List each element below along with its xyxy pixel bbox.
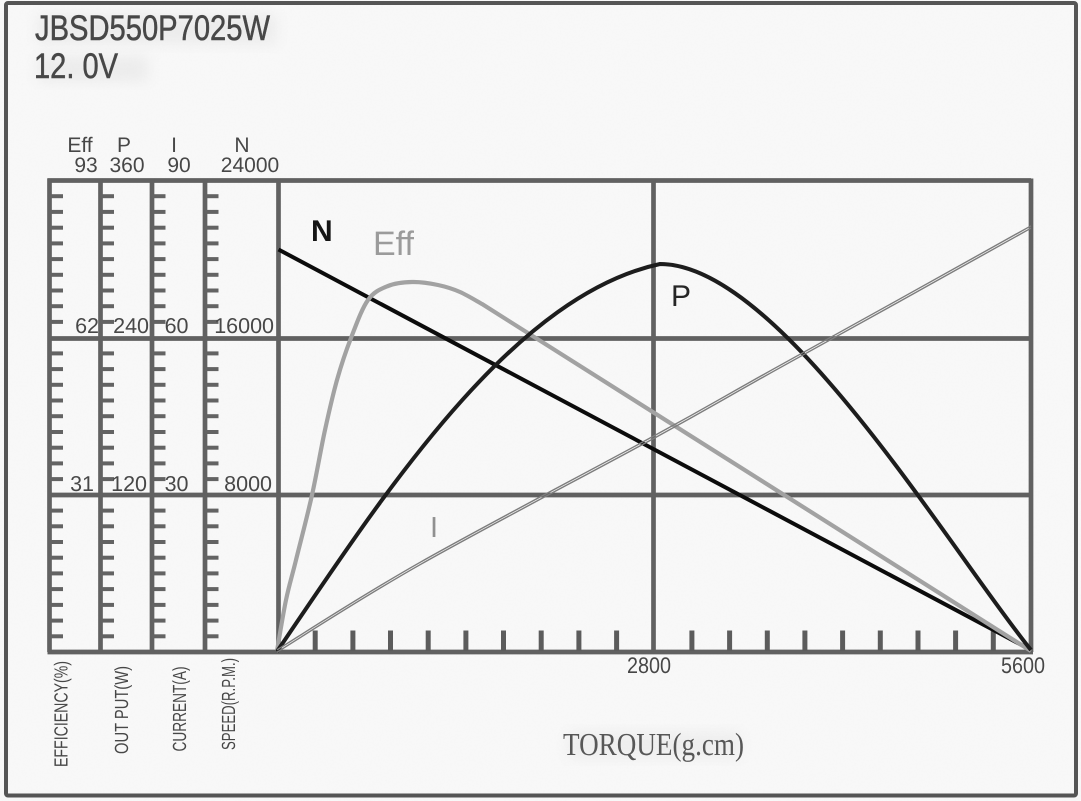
svg-text:Eff: Eff bbox=[373, 225, 415, 263]
svg-text:30: 30 bbox=[165, 472, 189, 496]
svg-text:OUT PUT(W): OUT PUT(W) bbox=[112, 666, 133, 754]
svg-text:8000: 8000 bbox=[224, 472, 272, 496]
svg-text:93: 93 bbox=[74, 154, 97, 177]
svg-text:N: N bbox=[311, 215, 333, 248]
svg-text:90: 90 bbox=[167, 154, 190, 177]
svg-text:12. 0V: 12. 0V bbox=[34, 46, 118, 86]
svg-text:240: 240 bbox=[113, 314, 149, 338]
svg-text:TORQUE(g.cm): TORQUE(g.cm) bbox=[563, 726, 744, 762]
svg-text:SPEED(R.P.M.): SPEED(R.P.M.) bbox=[219, 658, 240, 750]
svg-text:5600: 5600 bbox=[1001, 653, 1045, 678]
svg-text:2800: 2800 bbox=[627, 653, 671, 678]
svg-text:60: 60 bbox=[165, 314, 189, 338]
svg-text:EFFICIENCY(%): EFFICIENCY(%) bbox=[52, 661, 73, 767]
svg-text:JBSD550P7025W: JBSD550P7025W bbox=[35, 8, 270, 48]
svg-text:16000: 16000 bbox=[214, 314, 274, 338]
svg-text:24000: 24000 bbox=[221, 154, 279, 177]
svg-text:31: 31 bbox=[70, 472, 94, 496]
svg-text:360: 360 bbox=[109, 154, 144, 177]
svg-text:I: I bbox=[430, 512, 438, 544]
svg-text:120: 120 bbox=[111, 472, 147, 496]
svg-text:CURRENT(A): CURRENT(A) bbox=[170, 667, 191, 752]
svg-text:P: P bbox=[671, 280, 691, 313]
svg-text:62: 62 bbox=[75, 314, 99, 338]
